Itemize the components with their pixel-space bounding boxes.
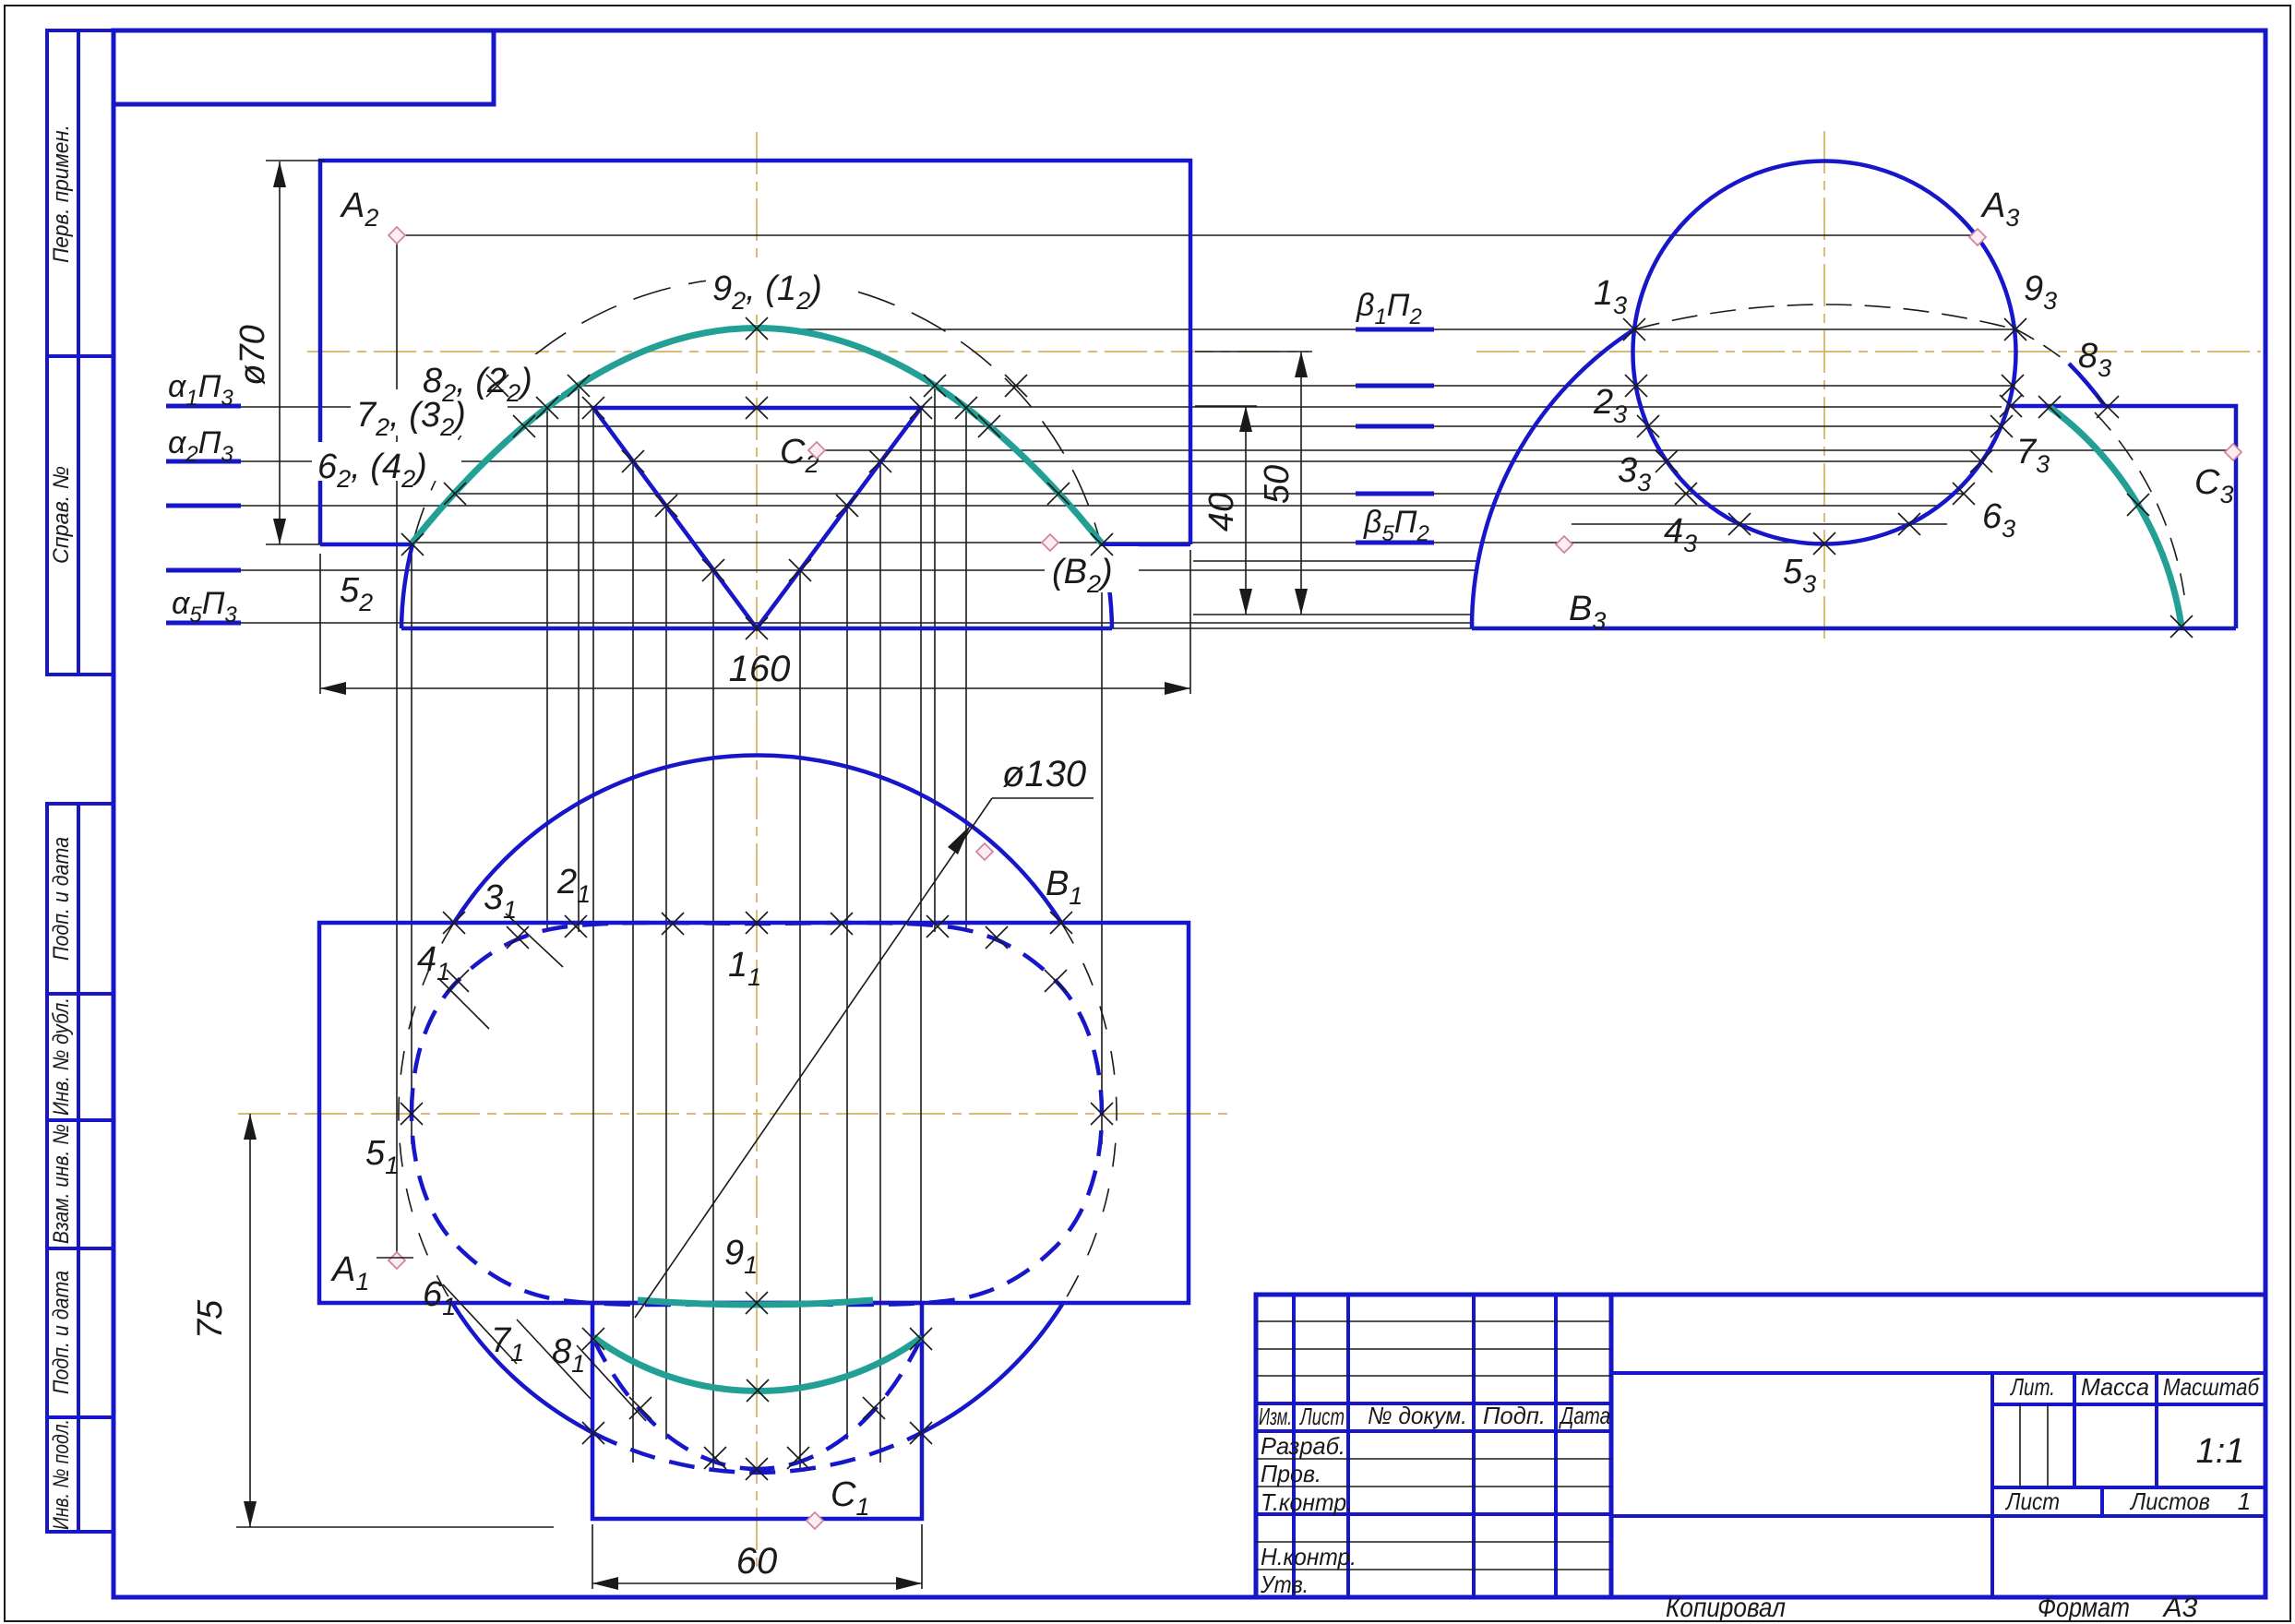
svg-text:Разраб.: Разраб. [1261,1432,1345,1460]
svg-text:60: 60 [736,1541,778,1582]
svg-text:Справ. №: Справ. № [49,466,74,564]
svg-text:Инв. № дубл.: Инв. № дубл. [49,997,74,1116]
svg-text:Т.контр.: Т.контр. [1261,1488,1353,1516]
svg-text:Взам. инв. №: Взам. инв. № [49,1124,74,1244]
svg-text:ø70: ø70 [233,325,272,385]
svg-text:Подп. и дата: Подп. и дата [49,837,74,961]
svg-text:Перв. примен.: Перв. примен. [49,125,74,263]
svg-text:Утв.: Утв. [1260,1570,1309,1598]
svg-text:Листов: Листов [2129,1487,2210,1515]
svg-text:Масса: Масса [2081,1373,2149,1401]
svg-text:(B2): (B2) [1052,553,1113,598]
svg-text:ø130: ø130 [1002,754,1086,794]
svg-text:Инв. № подл.: Инв. № подл. [49,1419,74,1530]
svg-text:Копировал: Копировал [1666,1593,1786,1623]
svg-text:Лист: Лист [1299,1403,1345,1430]
svg-text:Н.контр.: Н.контр. [1261,1543,1357,1570]
svg-text:Подп.: Подп. [1483,1402,1546,1429]
svg-text:160: 160 [729,649,791,689]
svg-text:Изм.: Изм. [1259,1403,1292,1430]
svg-text:Пров.: Пров. [1261,1460,1321,1487]
svg-text:1: 1 [2238,1487,2251,1515]
svg-text:40: 40 [1202,493,1241,531]
svg-text:Дата: Дата [1559,1402,1610,1429]
svg-text:Формат: Формат [2038,1593,2130,1623]
svg-text:Подп. и дата: Подп. и дата [49,1271,74,1394]
svg-text:А3: А3 [2162,1593,2198,1623]
svg-text:Лист: Лист [2004,1487,2060,1515]
svg-text:50: 50 [1258,465,1297,504]
svg-text:75: 75 [191,1299,230,1339]
svg-text:1:1: 1:1 [2196,1432,2245,1471]
svg-text:№ докум.: № докум. [1368,1402,1467,1429]
svg-text:Лит.: Лит. [2009,1373,2055,1401]
svg-text:Масштаб: Масштаб [2163,1373,2260,1401]
